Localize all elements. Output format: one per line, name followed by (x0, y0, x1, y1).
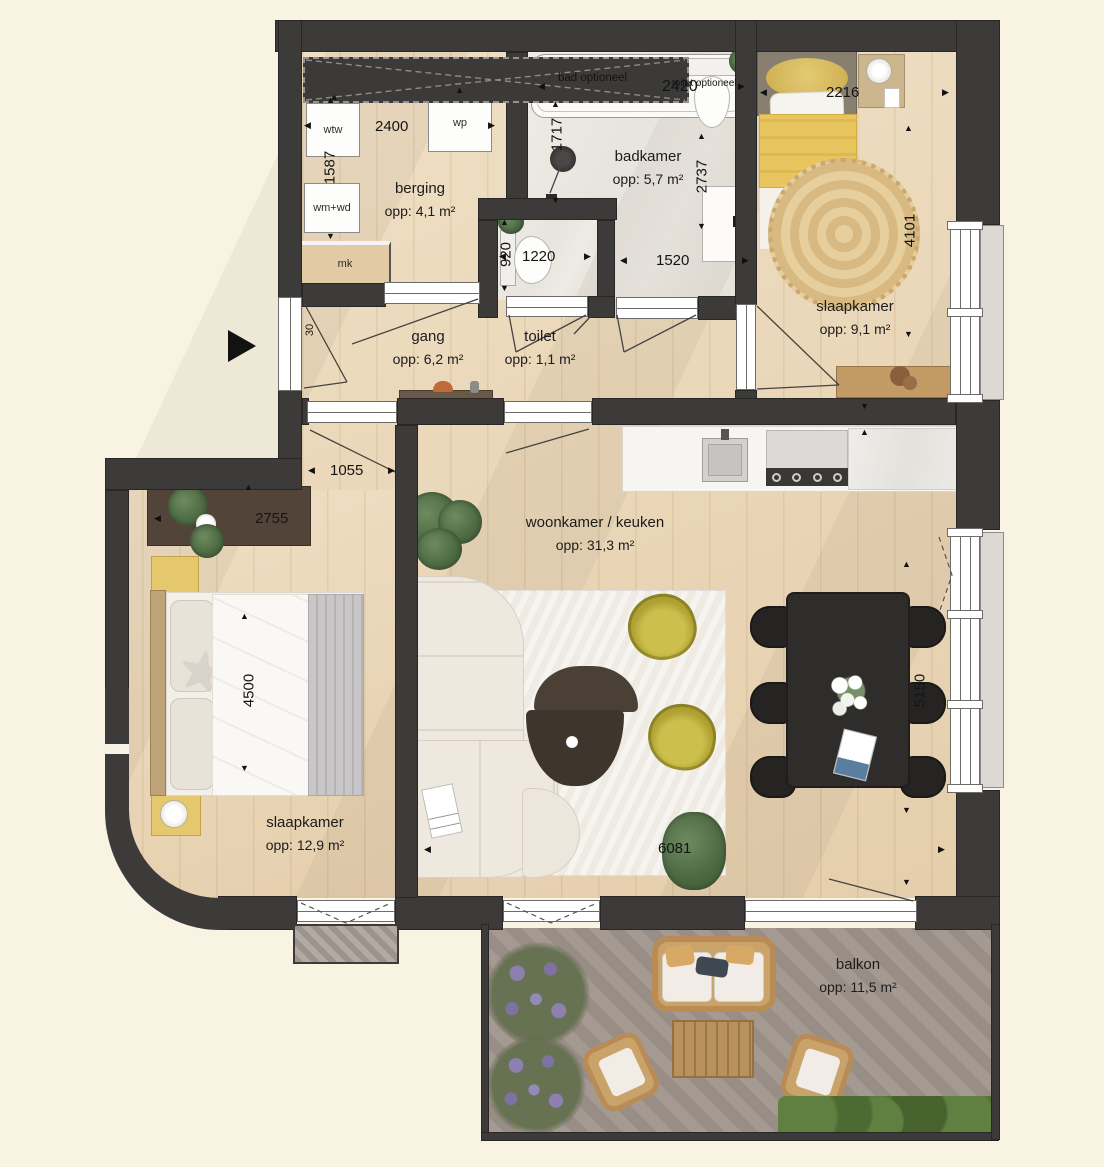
dim-1520: 1520 (656, 252, 689, 269)
dim-arrow: ▶ (488, 121, 495, 130)
bad-optioneel-label: bad optioneel (558, 72, 627, 84)
wall-toilet-top (478, 198, 617, 220)
dim-arrow: ▲ (860, 428, 869, 437)
dim-4101: 4101 (902, 209, 919, 253)
balcony-window (503, 900, 600, 922)
dim-arrow: ▼ (551, 196, 560, 205)
dim-1587: 1587 (322, 146, 339, 190)
balcony-pillow-tan-1 (665, 944, 696, 968)
bedroom1-door (736, 304, 756, 390)
wtw-label: wtw (324, 124, 343, 136)
dim-arrow: ◀ (538, 82, 545, 91)
dim-arrow: ▲ (455, 86, 464, 95)
burner-dot (772, 473, 781, 482)
window1-sill (980, 225, 1004, 400)
window2-mullion (947, 610, 983, 619)
room-name: balkon (798, 954, 918, 977)
dim-arrow: ◀ (154, 514, 161, 523)
wall-gang-woonkamer-2 (592, 398, 956, 425)
wall-bedroom2-woonkamer (395, 425, 418, 898)
dim-2755: 2755 (255, 510, 288, 527)
wall-right-a (956, 20, 1000, 225)
wall-balcony-left (481, 924, 489, 1140)
window2-mullion (947, 528, 983, 537)
juliet-balcony-ledge (293, 924, 399, 964)
window2-sill (980, 532, 1004, 788)
dim-arrow: ◀ (620, 256, 627, 265)
window2-frame (950, 532, 980, 788)
dim-2737: 2737 (694, 155, 711, 199)
sideboard-plant-2 (190, 524, 224, 558)
burner-dot (792, 473, 801, 482)
dim-arrow: ▶ (938, 845, 945, 854)
badkamer-door (616, 297, 698, 319)
dim-arrow: ▶ (388, 466, 395, 475)
room-area: opp: 1,1 m² (480, 349, 600, 370)
wall-bottom-1 (218, 896, 297, 930)
dim-2400: 2400 (375, 118, 408, 135)
wall-left-upper-a (278, 20, 302, 298)
window1-mullion (947, 308, 983, 317)
dim-arrow: ▲ (551, 100, 560, 109)
dim-arrow: ▶ (742, 256, 749, 265)
berging-sliding-door (384, 282, 480, 304)
wall-balcony-bottom (481, 1132, 999, 1141)
teddy-bear-head (903, 376, 917, 390)
dim-6081: 6081 (658, 840, 691, 857)
dim-arrow: ▼ (904, 330, 913, 339)
dim-arrow: ▼ (902, 878, 911, 887)
room-label-berging: berging opp: 4,1 m² (360, 178, 480, 222)
room-label-toilet: toilet opp: 1,1 m² (480, 326, 600, 370)
window1-mullion (947, 394, 983, 403)
room-area: opp: 4,1 m² (360, 201, 480, 222)
meter-cabinet-mk: mk (299, 241, 391, 287)
room-name: woonkamer / keuken (515, 512, 675, 535)
wall-gang-woonkamer-1 (397, 398, 504, 425)
dim-arrow: ▼ (500, 284, 509, 293)
room-label-slaapkamer2: slaapkamer opp: 12,9 m² (245, 812, 365, 856)
room-label-woonkamer: woonkamer / keuken opp: 31,3 m² (515, 512, 675, 556)
dim-30: 30 (304, 318, 316, 342)
mk-label: mk (338, 258, 353, 270)
dim-arrow: ▲ (902, 560, 911, 569)
wp-label: wp (453, 117, 467, 129)
dim-arrow: ▲ (330, 93, 339, 102)
kitchen-counter-marble (848, 428, 958, 490)
dim-arrow: ▼ (902, 806, 911, 815)
dim-5150: 5150 (912, 669, 929, 713)
room-area: opp: 12,9 m² (245, 835, 365, 856)
duct-shaft (303, 57, 689, 103)
wall-joint-mark (105, 744, 129, 754)
dim-arrow: ◀ (760, 88, 767, 97)
dim-1220: 1220 (522, 248, 555, 265)
room-area: opp: 5,7 m² (588, 169, 708, 190)
balcony-pillow-tan-2 (725, 945, 755, 966)
dim-arrow: ▶ (738, 82, 745, 91)
dim-arrow: ◀ (308, 466, 315, 475)
room-label-slaapkamer1: slaapkamer opp: 9,1 m² (795, 296, 915, 340)
wm-wd-label: wm+wd (313, 202, 351, 214)
dim-1717: 1717 (549, 113, 566, 157)
room-area: opp: 6,2 m² (368, 349, 488, 370)
dim-arrow: ▼ (860, 402, 869, 411)
dim-arrow: ◀ (424, 845, 431, 854)
burner-dot (813, 473, 822, 482)
entrance-arrow-icon (228, 330, 256, 362)
window2-mullion (947, 700, 983, 709)
dim-2216: 2216 (826, 84, 859, 101)
balcony-table (672, 1020, 754, 1078)
dim-arrow: ◀ (499, 252, 506, 261)
wall-badkamer-bottom (698, 296, 737, 320)
room-name: gang (368, 326, 488, 349)
dim-arrow: ▼ (697, 222, 706, 231)
room-label-balkon: balkon opp: 11,5 m² (798, 954, 918, 998)
woonkamer-sliding-door (504, 401, 592, 423)
appliance-wm-wd: wm+wd (304, 183, 360, 233)
dim-arrow: ▶ (584, 252, 591, 261)
wall-bottom-3 (600, 896, 745, 930)
floor-plan: wtw wp wm+wd mk (0, 0, 1104, 1167)
toilet-door (506, 296, 588, 317)
dim-4500: 4500 (241, 669, 258, 713)
dim-arrow: ▼ (240, 764, 249, 773)
window1-mullion (947, 221, 983, 230)
bed2-blanket (308, 594, 364, 796)
room-area: opp: 31,3 m² (515, 535, 675, 556)
dim-arrow: ◀ (304, 121, 311, 130)
dim-arrow: ▲ (500, 218, 509, 227)
wall-top (275, 20, 1000, 52)
bed2-nightstand-top (151, 556, 199, 594)
room-area: opp: 9,1 m² (795, 319, 915, 340)
room-name: slaapkamer (245, 812, 365, 835)
wall-left-lower (105, 490, 129, 690)
wall-berging-bottom (302, 283, 386, 307)
bed1-book (884, 88, 900, 108)
entrance-door-frame (278, 297, 302, 391)
kitchen-sink-basin (708, 444, 742, 476)
dim-arrow: ▶ (942, 88, 949, 97)
room-area: opp: 11,5 m² (798, 977, 918, 998)
room-name: slaapkamer (795, 296, 915, 319)
window2-mullion (947, 784, 983, 793)
bedroom2-window (297, 900, 395, 922)
dim-arrow: ▲ (697, 132, 706, 141)
coffee-table-flower (566, 736, 578, 748)
bedroom1-rug (768, 158, 920, 310)
wall-right-b (956, 400, 1000, 530)
console-deco (470, 381, 479, 393)
lavender-plant-1 (486, 942, 590, 1046)
burner-dot (833, 473, 842, 482)
wall-toilet-left (478, 220, 498, 318)
dining-flowers (824, 668, 876, 726)
room-label-badkamer: badkamer opp: 5,7 m² (588, 146, 708, 190)
room-label-gang: gang opp: 6,2 m² (368, 326, 488, 370)
dim-1055: 1055 (330, 462, 363, 479)
kitchen-faucet (721, 429, 729, 440)
wall-toilet-bottom-stub (588, 296, 615, 318)
room-name: toilet (480, 326, 600, 349)
dim-arrow: ▲ (904, 124, 913, 133)
cooktop-burner-strip (766, 468, 848, 486)
wall-bottom-4 (915, 896, 1000, 930)
room-name: badkamer (588, 146, 708, 169)
lavender-plant-2 (486, 1036, 586, 1134)
console-bowl (433, 381, 453, 392)
dim-arrow: ▼ (326, 232, 335, 241)
wall-balcony-right (991, 924, 1000, 1140)
bed1-lamp (866, 58, 892, 84)
wall-step (105, 458, 302, 490)
room-name: berging (360, 178, 480, 201)
living-plant-top-3 (416, 528, 462, 570)
bedroom2-sliding-door (307, 401, 397, 423)
balcony-door (745, 900, 917, 922)
dim-2420: 2420 (662, 78, 698, 96)
dim-arrow: ▲ (244, 483, 253, 492)
dim-arrow: ▲ (240, 612, 249, 621)
